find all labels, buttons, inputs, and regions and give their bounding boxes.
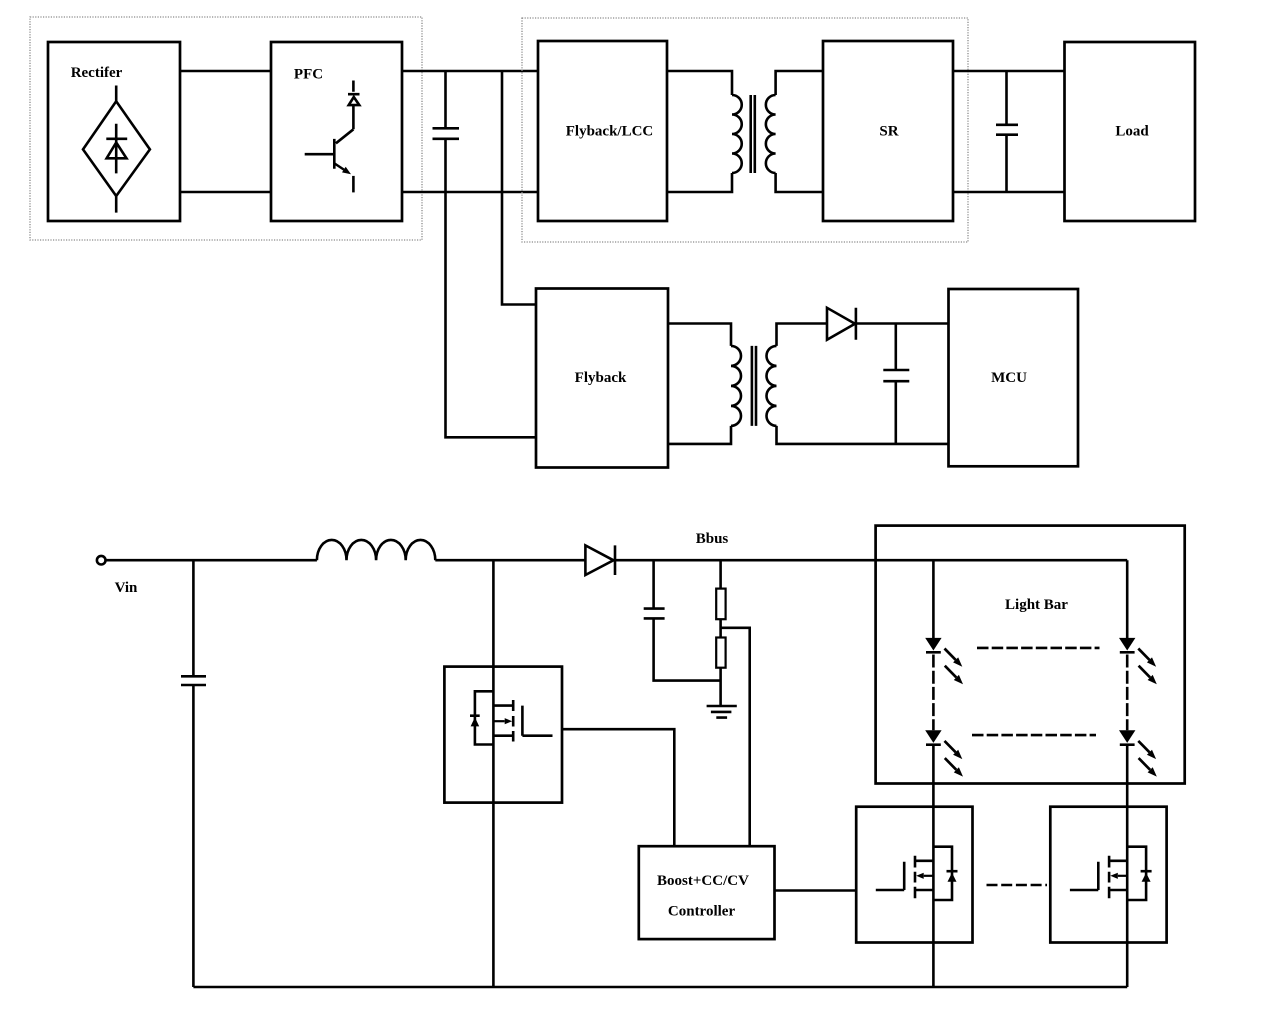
svg-text:Vin: Vin xyxy=(115,580,138,596)
svg-text:Light Bar: Light Bar xyxy=(1005,597,1068,613)
svg-text:Boost+CC/CV: Boost+CC/CV xyxy=(657,873,749,889)
svg-text:Bbus: Bbus xyxy=(696,531,729,547)
svg-text:PFC: PFC xyxy=(294,67,323,83)
svg-text:Rectifer: Rectifer xyxy=(71,65,123,81)
svg-text:Load: Load xyxy=(1115,124,1149,140)
svg-text:MCU: MCU xyxy=(991,370,1027,386)
svg-text:SR: SR xyxy=(879,124,898,140)
svg-text:Controller: Controller xyxy=(668,904,736,920)
svg-text:Flyback: Flyback xyxy=(575,370,627,386)
svg-text:Flyback/LCC: Flyback/LCC xyxy=(566,124,654,140)
